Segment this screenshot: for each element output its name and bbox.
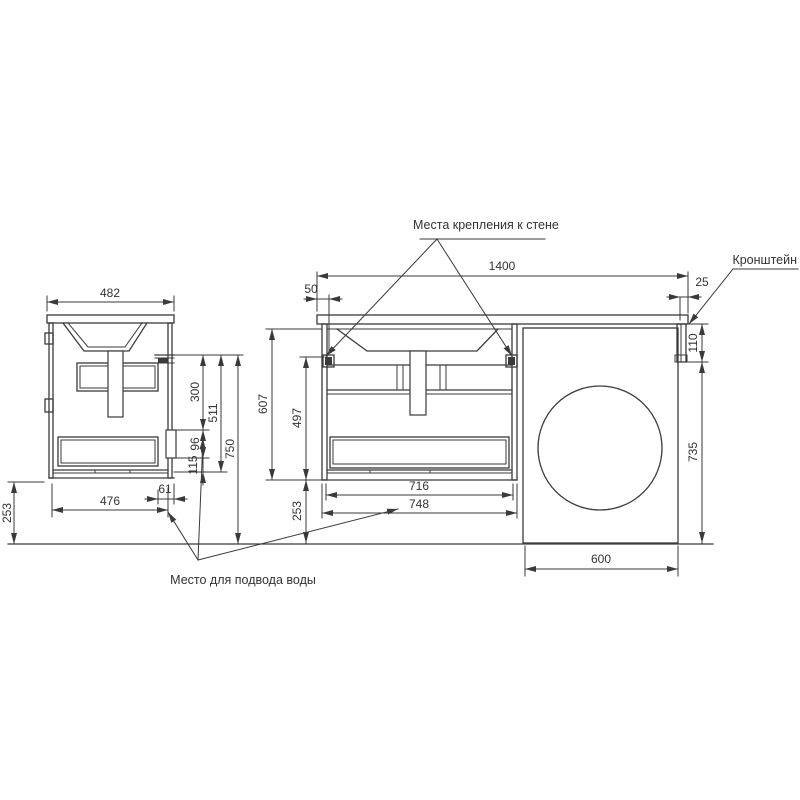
dim-front-mount-to-bottom: 497 bbox=[290, 408, 304, 428]
dim-side-cutout-height: 96 bbox=[188, 437, 202, 451]
side-view-cabinet bbox=[45, 315, 176, 478]
side-wall-bracket bbox=[158, 358, 168, 363]
dim-side-cutout-to-bottom: 115 bbox=[186, 455, 200, 474]
dim-front-mount-span: 716 bbox=[409, 479, 429, 493]
dim-side-bottom-depth: 476 bbox=[100, 494, 120, 508]
dim-front-right-overhang: 25 bbox=[695, 275, 709, 289]
wall-mount-label: Места крепления к стене bbox=[413, 218, 559, 232]
wall-mount-leader-right bbox=[437, 239, 512, 356]
side-water-cutout bbox=[166, 430, 176, 458]
side-drain-pipe bbox=[108, 351, 123, 417]
dim-front-washer-width: 600 bbox=[591, 552, 611, 566]
front-lower-drawer bbox=[330, 437, 509, 468]
washing-machine-body bbox=[523, 328, 678, 543]
wall-mount-leader-left bbox=[326, 239, 437, 356]
dim-front-washer-height: 735 bbox=[686, 442, 700, 462]
front-sink-apron bbox=[337, 329, 498, 351]
water-supply-leader-1 bbox=[168, 512, 198, 560]
front-countertop bbox=[317, 315, 688, 324]
dim-front-left-overhang: 50 bbox=[304, 282, 318, 296]
front-drain-pipe bbox=[410, 351, 426, 415]
technical-drawing-page: 482 253 476 61 300 96 bbox=[0, 0, 800, 800]
side-lower-drawer bbox=[58, 437, 158, 466]
dim-side-mount-to-drawer-bottom: 511 bbox=[206, 403, 220, 422]
dim-front-cabinet-width: 748 bbox=[409, 497, 429, 511]
dim-side-floor-gap: 253 bbox=[0, 503, 14, 523]
dim-side-top-depth: 482 bbox=[100, 286, 120, 300]
side-view: 482 253 476 61 300 96 bbox=[0, 286, 243, 544]
front-right-wall bbox=[512, 324, 517, 480]
front-view: 1400 50 25 110 735 607 bbox=[256, 259, 709, 576]
dim-front-bracket-height: 110 bbox=[686, 333, 700, 352]
dim-side-back-clearance: 61 bbox=[158, 482, 172, 496]
dim-front-cabinet-height: 607 bbox=[256, 394, 270, 414]
vanity-washer-drawing: 482 253 476 61 300 96 bbox=[0, 0, 800, 800]
front-view-cabinet bbox=[317, 315, 688, 480]
dim-front-floor-gap: 253 bbox=[290, 501, 304, 521]
front-view-dimensions: 1400 50 25 110 735 607 bbox=[256, 259, 709, 576]
dim-side-mount-to-cutout: 300 bbox=[188, 382, 202, 402]
bracket-label: Кронштейн bbox=[732, 253, 797, 267]
water-supply-label: Место для подвода воды bbox=[170, 573, 316, 587]
washing-machine-drum bbox=[538, 386, 662, 510]
dim-front-total-width: 1400 bbox=[489, 259, 516, 273]
front-left-wall bbox=[322, 324, 327, 480]
side-countertop bbox=[47, 315, 174, 323]
dim-side-mount-height: 750 bbox=[223, 439, 237, 459]
washing-machine bbox=[523, 328, 678, 543]
